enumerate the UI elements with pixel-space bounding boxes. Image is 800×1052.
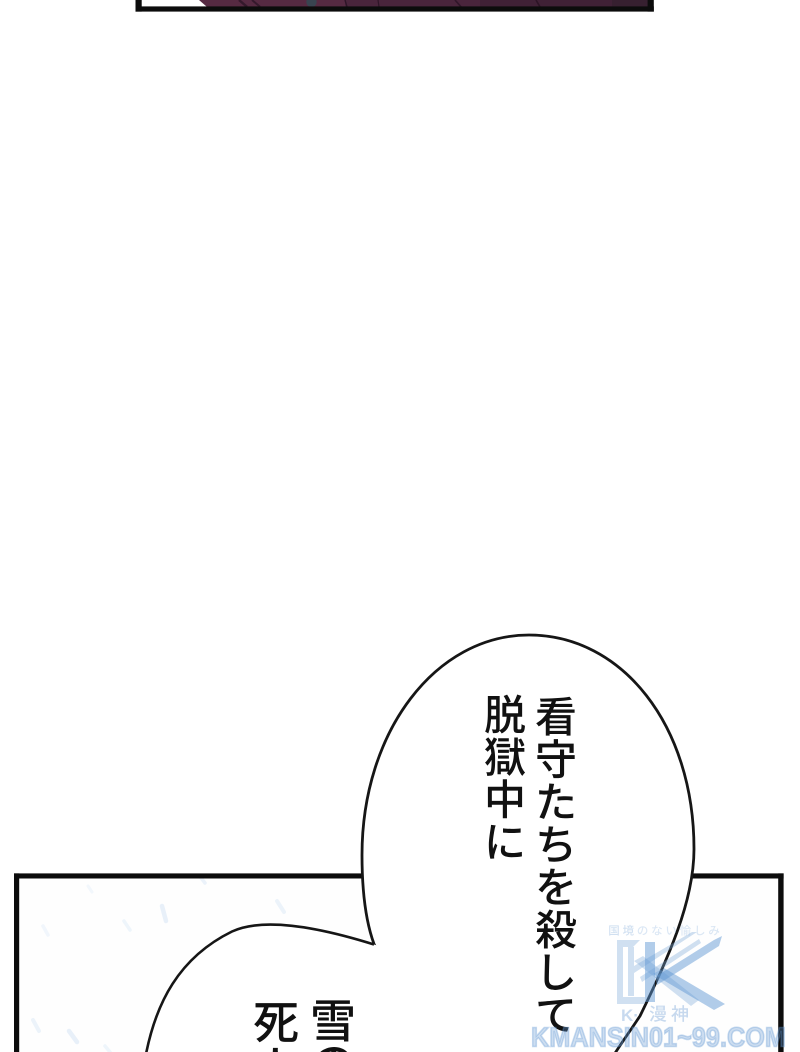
svg-text:KMANSIN01~99.COM: KMANSIN01~99.COM: [531, 1022, 786, 1052]
